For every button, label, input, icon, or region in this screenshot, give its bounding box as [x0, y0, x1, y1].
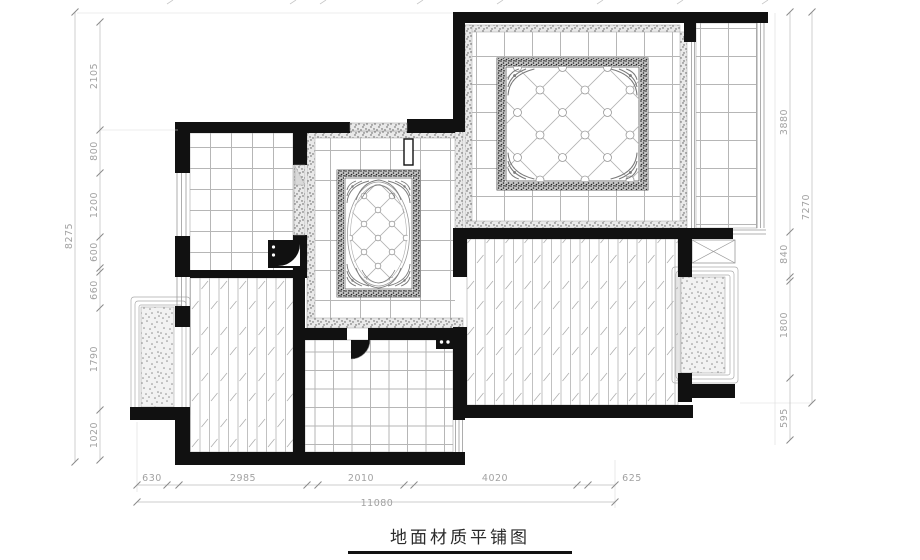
dim-label: 630: [142, 473, 162, 484]
dim-label: 8275: [64, 223, 75, 249]
floor-plan-svg: 8275 2105 800 1200 600 660 1790 1020 388…: [0, 0, 920, 560]
floor-plan-drawing: 8275 2105 800 1200 600 660 1790 1020 388…: [0, 0, 920, 560]
dim-label: 11080: [361, 498, 394, 509]
dim-label: 2010: [348, 473, 374, 484]
dim-label: 7270: [801, 194, 812, 220]
dining-border-strip-top: [465, 25, 680, 32]
dim-label: 1200: [89, 192, 100, 218]
dim-label: 660: [89, 280, 100, 300]
master-bedroom-floor: [467, 239, 678, 405]
entrance-threshold: [350, 123, 407, 131]
kitchen-hinge-icon: [436, 335, 453, 349]
dim-label: 1800: [779, 312, 790, 338]
dim-label: 4020: [482, 473, 508, 484]
dim-label: 600: [89, 242, 100, 262]
flue-box: [692, 240, 735, 263]
bedroom-door-swing-icon: [268, 240, 303, 268]
dim-label: 840: [779, 244, 790, 264]
bedroom-left-floor: [190, 278, 293, 452]
dining-border-strip-left: [465, 25, 472, 221]
hall-rug: [337, 170, 420, 297]
dim-label: 3880: [779, 109, 790, 135]
dim-label: 595: [779, 408, 790, 428]
title-underline: [348, 551, 572, 554]
hall-border-strip-right: [455, 131, 463, 228]
dining-border-strip-right: [680, 32, 687, 221]
entrance-door-leaf-icon: [404, 139, 413, 165]
dining-medallion: [497, 58, 648, 190]
dim-label: 625: [622, 473, 642, 484]
page-title: 地面材质平铺图: [390, 528, 530, 548]
hall-border-strip-left: [307, 131, 315, 328]
dim-label: 2985: [230, 473, 256, 484]
dining-border-strip-bottom: [465, 221, 687, 228]
kitchen-floor: [305, 340, 453, 452]
dim-label: 2105: [89, 63, 100, 89]
hall-border-strip-bottom: [307, 318, 463, 328]
balcony-top-floor: [696, 23, 757, 228]
balcony-right-stipple: [681, 277, 725, 373]
balcony-left-stipple: [141, 307, 174, 407]
dim-label: 800: [89, 141, 100, 161]
dim-label: 1020: [89, 422, 100, 448]
dim-label: 1790: [89, 346, 100, 372]
